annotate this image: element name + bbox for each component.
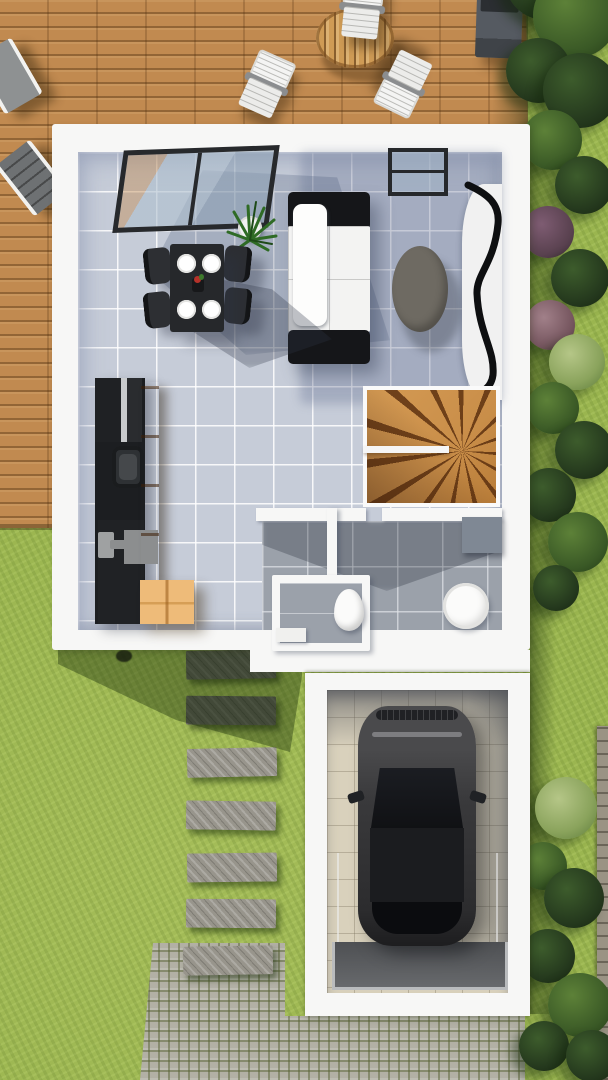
plate xyxy=(202,254,221,273)
bush xyxy=(544,868,604,928)
car xyxy=(358,706,476,946)
window-mullion xyxy=(188,153,202,226)
garage-door-ramp xyxy=(332,942,508,990)
plate xyxy=(177,300,196,319)
dining-chair xyxy=(142,247,173,286)
bush xyxy=(551,249,608,307)
garage xyxy=(305,673,530,1016)
curved-media-unit xyxy=(462,184,502,400)
door-mullion xyxy=(392,170,444,173)
kitchen-upper-cabinet xyxy=(95,378,142,442)
dining-chair xyxy=(222,245,253,284)
bush xyxy=(519,1021,569,1071)
winder-staircase xyxy=(363,386,500,507)
dining-chair xyxy=(142,291,173,330)
car-grille xyxy=(376,710,458,720)
bush xyxy=(535,777,597,839)
toilet xyxy=(334,589,364,631)
sink-basin xyxy=(119,454,137,480)
plate xyxy=(202,300,221,319)
kitchen-faucet xyxy=(98,532,114,558)
bush xyxy=(548,512,608,572)
kitchen-sink xyxy=(112,446,144,488)
plate xyxy=(177,254,196,273)
wooden-crate xyxy=(140,580,194,624)
coffee-table xyxy=(392,246,448,332)
floorplan-render: Top-down 3D rendering of a ground-floor … xyxy=(0,0,608,1080)
partition-wall xyxy=(256,508,366,521)
bush xyxy=(555,156,608,214)
sofa-chaise-cushion xyxy=(293,204,327,326)
car-rear-window xyxy=(372,902,462,934)
stair-railing xyxy=(363,446,449,453)
bush xyxy=(533,565,579,611)
car-windshield xyxy=(368,768,466,828)
bathroom-cabinet xyxy=(462,517,502,553)
dining-chair xyxy=(222,287,253,326)
car-roof xyxy=(370,828,464,902)
exterior-wall-extension xyxy=(250,650,530,672)
hallway-wall xyxy=(327,508,337,580)
car-hood-highlight xyxy=(372,732,462,737)
house-floorplan xyxy=(52,124,530,672)
glass-door xyxy=(388,148,448,196)
bush xyxy=(566,1030,608,1080)
table-centerpiece xyxy=(192,278,204,292)
bush xyxy=(555,421,608,479)
round-shower-basin xyxy=(443,583,489,629)
wc-ledge xyxy=(276,628,306,642)
tall-wood-cabinet xyxy=(141,382,159,582)
leaf xyxy=(199,274,204,280)
